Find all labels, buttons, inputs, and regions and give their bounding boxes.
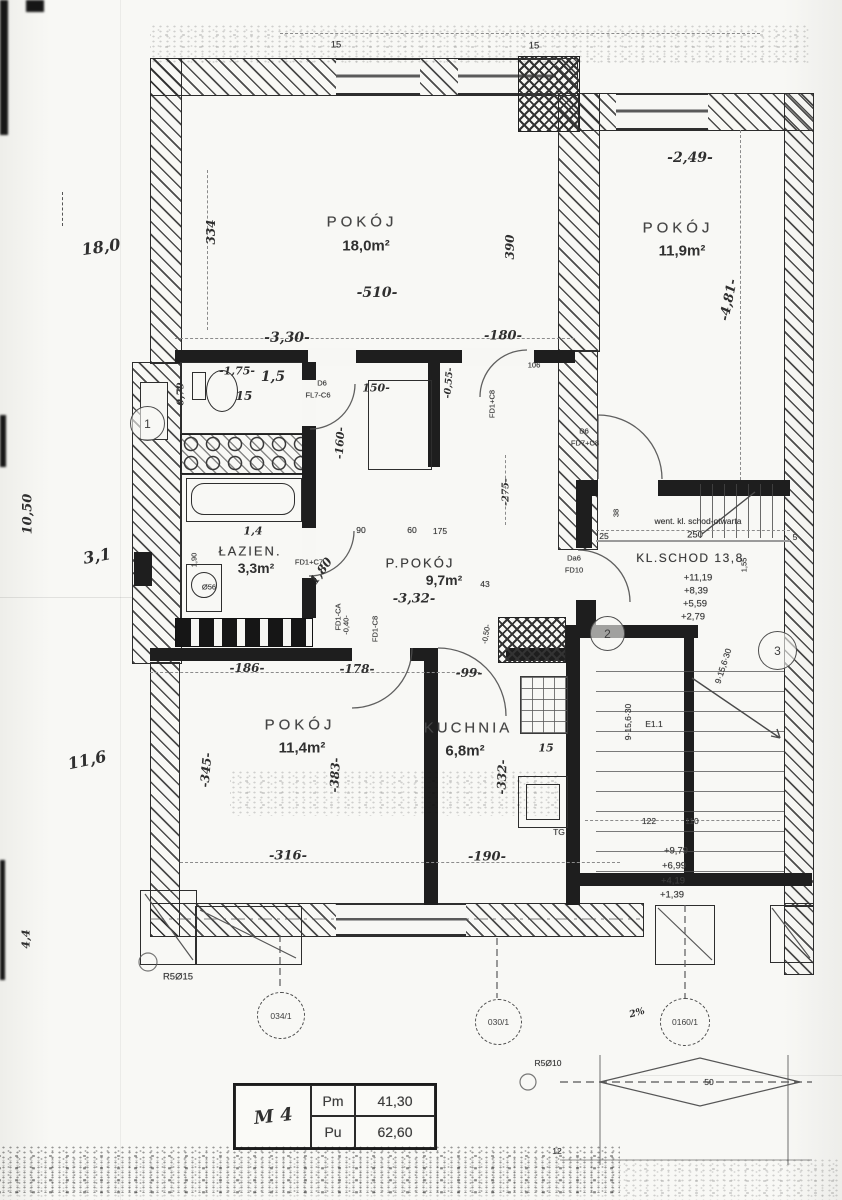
stair-treads-lower xyxy=(596,652,784,872)
room-area-pokoj1: 18,0m² xyxy=(342,238,390,255)
room-area-kuchnia: 6,8m² xyxy=(445,743,484,760)
room-label-ppokoj: P.POKÓJ xyxy=(386,556,455,571)
dim-150: 150- xyxy=(362,382,390,395)
legend-pu-value: 62,60 xyxy=(355,1116,435,1148)
door-code-6a: Da6 xyxy=(567,554,581,563)
dim-line-4 xyxy=(180,862,620,863)
scan-noise-bottom-2 xyxy=(0,1158,842,1200)
note-50: 50 xyxy=(704,1077,713,1087)
room-label-klschod: KL.SCHOD 13,8 xyxy=(636,551,744,565)
wall-exterior-left-upper xyxy=(150,58,182,364)
scan-smudge-4 xyxy=(0,860,5,980)
scanned-floor-plan-sheet: POKÓJ 18,0m² POKÓJ 11,9m² POKÓJ 11,4m² K… xyxy=(0,0,842,1200)
margin-note-180: 18,0 xyxy=(80,235,121,259)
paper-crease-v xyxy=(120,0,121,1200)
wall-stair-top-stub xyxy=(576,480,598,496)
bathtub-inner xyxy=(191,483,295,515)
dim-055: -0,55- xyxy=(442,367,456,399)
dim-249: -2,49- xyxy=(667,150,713,166)
stair-level-1: +11,19 xyxy=(684,573,713,584)
room-label-pokoj3: POKÓJ xyxy=(265,717,336,734)
stair-level-3: +5,59 xyxy=(683,599,707,610)
grid-bubble-034-label: 034/1 xyxy=(270,1011,291,1021)
kitchen-stove-inner xyxy=(526,784,560,820)
scan-smudge-2 xyxy=(26,0,44,12)
scan-mark-dash xyxy=(62,192,63,226)
door-code-6b: FD10 xyxy=(565,566,583,575)
dim-345: -345- xyxy=(198,752,215,788)
wall-stairwell-left-2 xyxy=(576,600,592,628)
dim-line-top xyxy=(280,33,760,34)
door-gap-room1 xyxy=(462,348,534,366)
dim-line-7 xyxy=(585,820,780,821)
axis-bubble-3-label: 3 xyxy=(774,644,781,658)
dim-190v: 1,90 xyxy=(190,553,199,568)
dim-90: 90 xyxy=(356,525,365,535)
door-code-2a: D6 xyxy=(579,427,589,436)
corner-box-bl-2 xyxy=(195,906,302,965)
window-bottom xyxy=(336,903,466,936)
dim-190: -190- xyxy=(468,850,506,865)
scan-noise-bottom-1 xyxy=(0,1145,620,1193)
dim-kitchen-15: 15 xyxy=(538,742,553,755)
dim-050: -0,50- xyxy=(480,624,492,645)
dim-155: 1,55 xyxy=(740,558,749,573)
scan-noise-mid xyxy=(230,770,560,816)
door-gap-wc2 xyxy=(302,380,316,426)
dim-316: -316- xyxy=(269,849,307,864)
wall-room-kitchen-divider xyxy=(424,661,438,905)
stair-lower-level-4: +1,39 xyxy=(660,890,684,901)
dim-15-top-a: 15 xyxy=(331,40,342,51)
kitchen-sink-unit xyxy=(520,676,568,734)
toilet-tank xyxy=(192,372,206,400)
stair-lower-level-2: +6,99 xyxy=(662,861,686,872)
label-tg: TG xyxy=(553,827,565,837)
grid-bubble-030-label: 030/1 xyxy=(488,1017,509,1027)
window-top-3 xyxy=(616,93,708,130)
room-area-ppokoj: 9,7m² xyxy=(426,572,463,588)
stair-lower-level-3: +4,19 xyxy=(661,876,685,887)
margin-note-31: 3,1 xyxy=(82,544,113,568)
axis-bubble-2-label: 2 xyxy=(604,627,611,641)
door-code-3: FD1+C8 xyxy=(488,390,497,418)
wall-stair-bottom xyxy=(576,873,812,886)
legend-unit: M 4 xyxy=(253,1104,294,1129)
dim-334: 334 xyxy=(204,219,218,244)
dim-60: 60 xyxy=(407,525,416,535)
legend-pm-value: 41,30 xyxy=(355,1085,435,1116)
axis-bubble-2: 2 xyxy=(590,616,625,651)
stair-level-2: +8,39 xyxy=(684,586,708,597)
room-label-lazienka: ŁAZIEN. xyxy=(218,544,281,559)
note-2pct: 2% xyxy=(628,1006,646,1021)
wall-lower-top-1 xyxy=(150,648,352,661)
corner-box-bl-1 xyxy=(140,890,197,965)
dim-186: -186- xyxy=(229,661,264,675)
room-area-lazienka: 3,3m² xyxy=(238,560,275,576)
flue-block-row xyxy=(175,618,313,647)
scan-smudge-3 xyxy=(0,415,6,467)
dim-175: -1,75- xyxy=(219,365,255,378)
door-code-4: FD1+C7 xyxy=(295,558,323,567)
dim-5: 5 xyxy=(793,532,798,542)
dim-481: -4,81- xyxy=(717,278,740,323)
room-area-pokoj2: 11,9m² xyxy=(659,243,706,260)
dim-99: -99- xyxy=(456,666,483,680)
dim-122: 122 xyxy=(642,816,656,826)
grid-bubble-034: 034/1 xyxy=(257,992,305,1039)
dim-15-top-b: 15 xyxy=(529,41,540,52)
room-label-pokoj1: POKÓJ xyxy=(327,214,398,231)
dim-383: -383- xyxy=(327,757,343,793)
dim-25: 25 xyxy=(599,531,608,541)
dim-line-2 xyxy=(740,130,741,480)
wall-stairwell-left-1 xyxy=(576,496,592,548)
door-code-2b: FD7+C8 xyxy=(571,439,599,448)
dim-38: 38 xyxy=(612,509,621,517)
vent-duct-block xyxy=(180,434,308,474)
legend-pu-key: Pu xyxy=(311,1116,355,1148)
dim-178: -178- xyxy=(339,662,374,676)
room-label-kuchnia: KUCHNIA xyxy=(424,720,513,737)
dim-510: -510- xyxy=(357,285,398,301)
note-rs15: R5Ø15 xyxy=(163,972,193,983)
door-code-1a: D6 xyxy=(317,379,327,388)
paper-crease-h2 xyxy=(640,1075,842,1076)
room-area-pokoj3: 11,4m² xyxy=(279,740,326,757)
dim-14: 1,4 xyxy=(243,525,262,538)
paper-crease-h1 xyxy=(0,597,132,598)
dim-390: 390 xyxy=(503,234,517,259)
axis-bubble-3: 3 xyxy=(758,631,797,670)
door-code-5: FD1-C8 xyxy=(371,616,380,642)
chimney-block-kitchen xyxy=(498,617,566,663)
dim-12: 12 xyxy=(552,1146,561,1156)
wall-pier-left xyxy=(134,552,152,586)
grid-bubble-0160: 0160/1 xyxy=(660,998,710,1046)
dim-330: -3,30- xyxy=(264,330,310,346)
legend-pm-key: Pm xyxy=(311,1085,355,1116)
wall-exterior-right xyxy=(784,93,814,907)
grid-bubble-0160-label: 0160/1 xyxy=(672,1017,698,1027)
dim-332: -3,32- xyxy=(393,592,435,607)
margin-note-44: 4,4 xyxy=(20,929,33,948)
dim-wc-area: 1,5 xyxy=(261,369,285,385)
dim-o56: Ø56 xyxy=(202,583,216,592)
dim-line-5 xyxy=(150,672,480,673)
door-code-1b: FL7-C6 xyxy=(305,391,330,400)
grid-bubble-030: 030/1 xyxy=(475,999,522,1045)
dim-line-8 xyxy=(207,170,208,330)
wall-between-top-rooms xyxy=(558,93,600,352)
corner-box-br-1 xyxy=(655,905,715,965)
wall-kitchen-east xyxy=(566,625,580,905)
dim-332v: -332- xyxy=(494,759,509,794)
dim-040: -0,40- xyxy=(342,615,351,635)
dim-110: 110 xyxy=(685,816,699,826)
corner-box-br-2 xyxy=(770,905,814,963)
dim-43: 43 xyxy=(480,579,489,589)
dim-180: -180- xyxy=(484,329,522,344)
stair-lower-label: E1.1 xyxy=(645,719,663,729)
note-r510: R5Ø10 xyxy=(535,1058,562,1068)
window-top-1 xyxy=(336,58,420,95)
stair-vent-note: went. kl. schod-otwarta xyxy=(655,516,742,526)
margin-note-1050: 10,50 xyxy=(21,494,36,535)
wall-lower-top-2 xyxy=(410,648,438,661)
dim-275: -275- xyxy=(501,478,512,506)
axis-bubble-1-label: 1 xyxy=(144,417,151,431)
dim-wc-15: 15 xyxy=(236,389,253,403)
dim-175b: 175 xyxy=(433,526,447,536)
stair-level-4: +2,79 xyxy=(681,612,705,623)
room-label-pokoj2: POKÓJ xyxy=(643,220,714,237)
stair-lower-level-1: +9,79 xyxy=(664,846,688,857)
scan-smudge-1 xyxy=(0,0,8,135)
dim-106: 106 xyxy=(528,361,541,370)
dim-160: -160- xyxy=(333,427,348,460)
margin-note-116: 11,6 xyxy=(66,747,108,774)
dim-079: -0,79- xyxy=(176,378,187,409)
axis-bubble-1: 1 xyxy=(130,406,165,441)
stair-width: 250 xyxy=(687,530,703,541)
door-code-7: FD1-CA xyxy=(334,603,343,630)
legend-unit-cell: M 4 xyxy=(235,1085,311,1148)
stair-formula-1: 9·15,6·30 xyxy=(623,704,633,740)
legend-table: M 4 Pm 41,30 Pu 62,60 xyxy=(233,1083,437,1150)
